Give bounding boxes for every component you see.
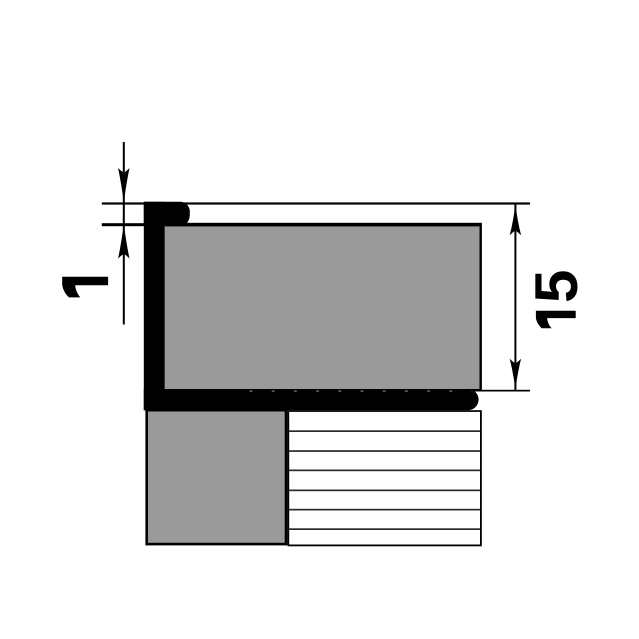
svg-text:5: 5 [523, 270, 590, 303]
